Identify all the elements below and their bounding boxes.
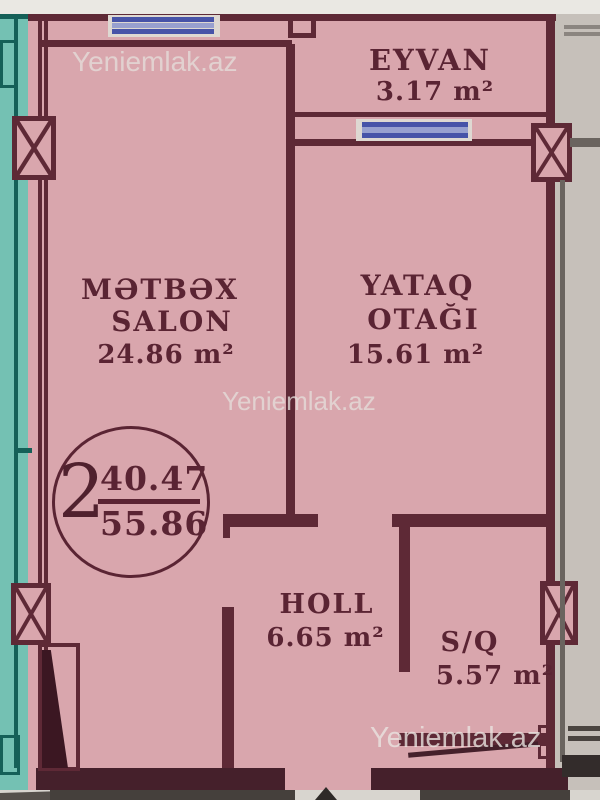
room-area-holl: 6.65 m² xyxy=(258,623,393,653)
wall-bathroom-left xyxy=(399,527,410,672)
room-label-otagi: OTAĞI xyxy=(326,304,521,336)
window-balcony-bar2 xyxy=(362,133,468,138)
window-top-bar2 xyxy=(112,29,214,34)
room-label-holl: HOLL xyxy=(262,590,392,620)
teal-tick xyxy=(18,448,32,453)
watermark-bottom: Yeniemlak.az xyxy=(370,722,541,755)
structural-column-bottom-right xyxy=(540,581,578,645)
outside-line-top-right-2 xyxy=(564,32,600,36)
wall-top-notch xyxy=(288,21,316,38)
badge-room-count: 2 xyxy=(58,444,104,540)
structural-column-top-right xyxy=(531,123,572,182)
wall-mid-left-hook xyxy=(223,514,230,538)
floor-plan: 2 40.47 55.86 EYVAN 3.17 m² MƏTBƏX SALON… xyxy=(0,0,600,800)
room-label-metbex: MƏTBƏX xyxy=(60,274,260,306)
bottom-right-line-1 xyxy=(568,726,600,731)
teal-detail-box-bottom xyxy=(0,735,20,775)
badge-living-area: 40.47 xyxy=(100,461,200,497)
bottom-right-line-2 xyxy=(568,736,600,741)
teal-detail-box-top xyxy=(0,40,18,88)
window-top-glass xyxy=(112,23,214,28)
wall-mid-left-segment xyxy=(223,514,318,527)
room-label-sq: S/Q xyxy=(415,628,525,658)
bottom-shadow-left xyxy=(50,790,295,800)
outside-wall-stub-right xyxy=(570,138,600,147)
outside-line-top-right-1 xyxy=(564,25,600,29)
room-label-eyvan: EYVAN xyxy=(330,44,530,76)
room-area-eyvan: 3.17 m² xyxy=(340,78,530,106)
bottom-shadow-right xyxy=(420,790,570,800)
room-area-sq: 5.57 m² xyxy=(425,661,565,691)
structural-column-bottom-left xyxy=(11,583,51,645)
room-area-metbex: 24.86 m² xyxy=(66,340,266,370)
wall-bottom-left xyxy=(36,768,285,790)
room-area-yataq: 15.61 m² xyxy=(318,340,513,370)
badge-total-area: 55.86 xyxy=(100,506,200,542)
watermark-middle: Yeniemlak.az xyxy=(222,386,376,417)
watermark-top: Yeniemlak.az xyxy=(72,46,238,78)
window-top-bar1 xyxy=(112,17,214,22)
wall-hall-divider xyxy=(222,607,234,774)
wall-balcony-upper xyxy=(286,112,548,117)
wall-mid-right-segment xyxy=(392,514,555,527)
structural-column-top-left xyxy=(12,116,56,180)
bottom-right-dark-block xyxy=(562,755,600,777)
room-label-salon: SALON xyxy=(72,307,272,337)
wall-bottom-right xyxy=(371,768,568,790)
room-label-yataq: YATAQ xyxy=(320,270,515,302)
